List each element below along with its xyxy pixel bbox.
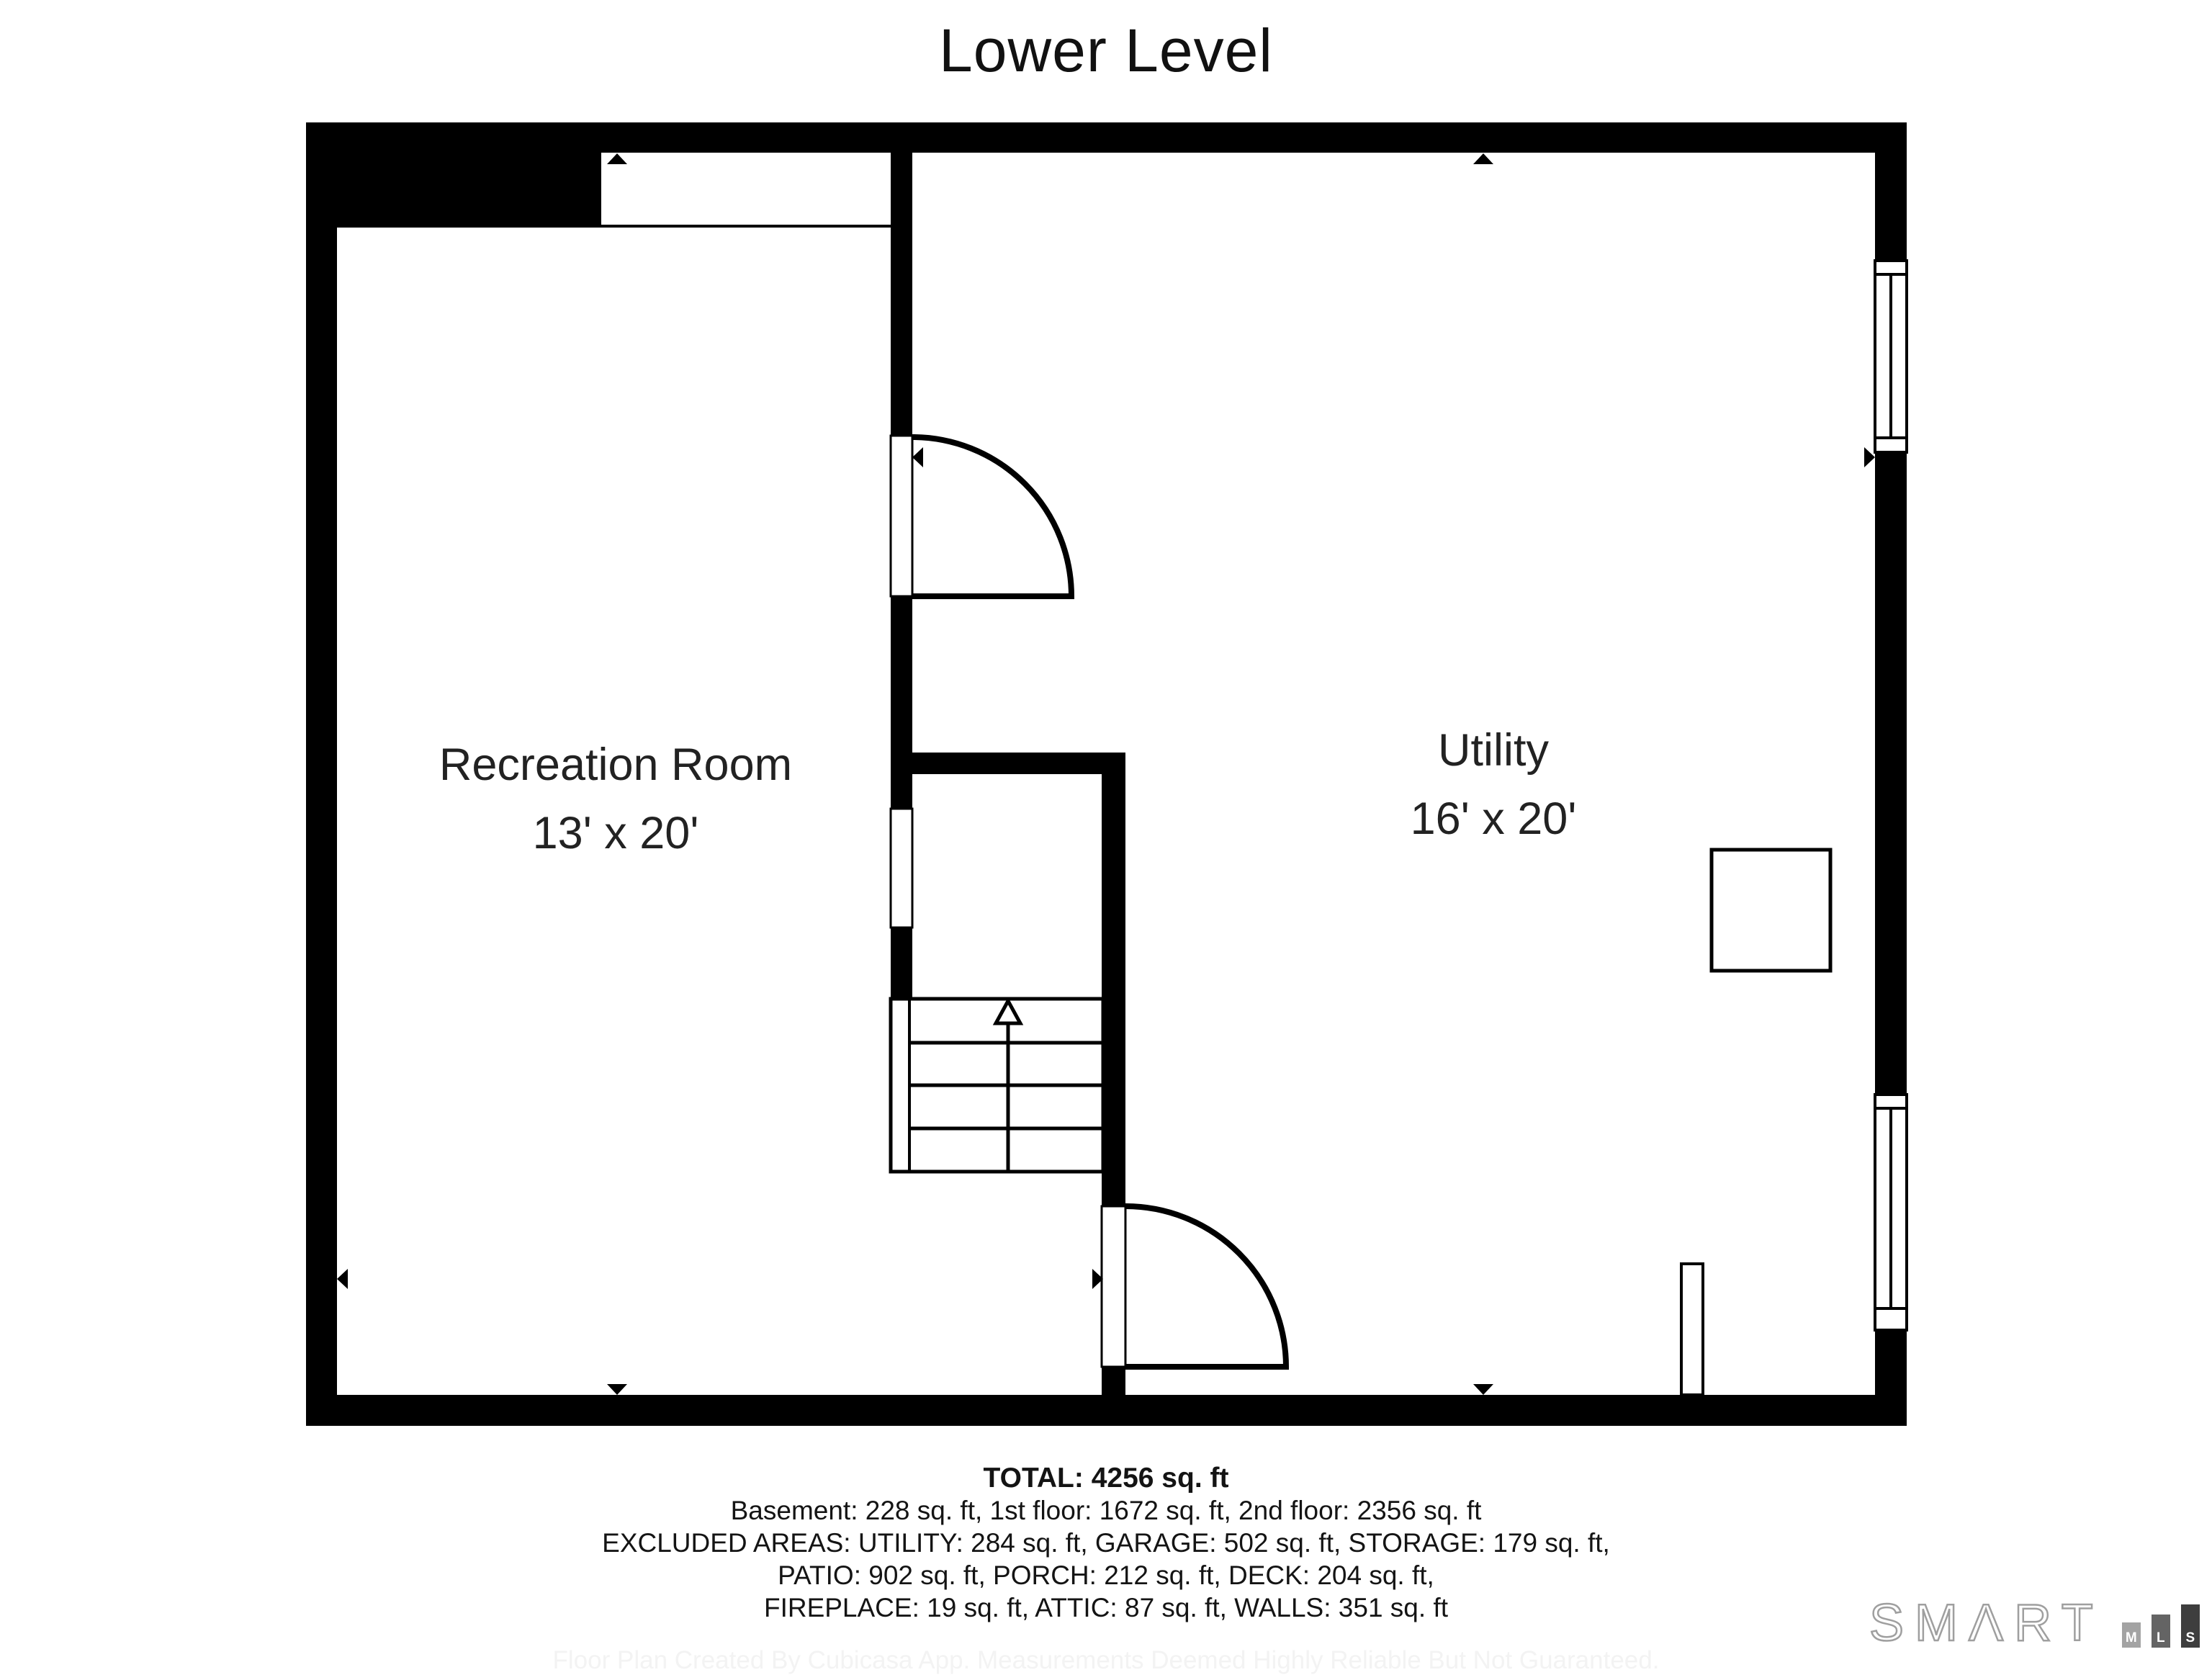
wall-stair-right bbox=[1102, 753, 1125, 1206]
solid-area-top-left bbox=[337, 153, 601, 228]
door-opening-utility bbox=[891, 436, 912, 596]
wall-top bbox=[306, 122, 1907, 153]
marker-left-utility bbox=[912, 447, 923, 467]
marker-right-utility bbox=[1864, 447, 1875, 467]
smartmls-wordmark: SMΛRT bbox=[1869, 1599, 2104, 1648]
window-lower bbox=[1875, 1095, 1907, 1330]
summary-total: TOTAL: 4256 sq. ft bbox=[0, 1462, 2212, 1494]
wall-center-upper bbox=[891, 153, 912, 436]
smartmls-logo: SMΛRT M L S bbox=[1869, 1594, 2200, 1648]
wall-center-lower bbox=[891, 928, 912, 999]
wall-stair-right-stub bbox=[1102, 1367, 1125, 1395]
marker-up-left bbox=[607, 153, 627, 164]
notch-bottom-line bbox=[337, 225, 891, 228]
wall-bottom bbox=[306, 1395, 1907, 1426]
equipment-box bbox=[1712, 850, 1830, 971]
room-label-recreation: Recreation Room 13' x 20' bbox=[256, 731, 976, 868]
door-swing-lower bbox=[1125, 1206, 1286, 1367]
room-name-utility: Utility bbox=[1205, 717, 1781, 785]
summary-excluded-1: EXCLUDED AREAS: UTILITY: 284 sq. ft, GAR… bbox=[0, 1527, 2212, 1559]
logo-block-m: M bbox=[2122, 1622, 2141, 1648]
summary-floors: Basement: 228 sq. ft, 1st floor: 1672 sq… bbox=[0, 1494, 2212, 1527]
wall-stub-fixture bbox=[1681, 1264, 1703, 1395]
marker-down-left bbox=[607, 1384, 627, 1395]
room-dimensions-utility: 16' x 20' bbox=[1205, 785, 1781, 853]
door-opening-lower bbox=[1102, 1206, 1125, 1367]
door-swing-utility bbox=[912, 437, 1071, 596]
marker-up-right bbox=[1473, 153, 1493, 164]
room-label-utility: Utility 16' x 20' bbox=[1205, 717, 1781, 853]
marker-left-recroom bbox=[337, 1269, 348, 1289]
summary-excluded-2: PATIO: 902 sq. ft, PORCH: 212 sq. ft, DE… bbox=[0, 1559, 2212, 1591]
marker-down-right bbox=[1473, 1384, 1493, 1395]
room-dimensions-recreation: 13' x 20' bbox=[256, 799, 976, 868]
smartmls-blocks: M L S bbox=[2111, 1604, 2200, 1648]
room-name-recreation: Recreation Room bbox=[256, 731, 976, 799]
logo-block-l: L bbox=[2152, 1615, 2170, 1648]
window-upper bbox=[1875, 261, 1907, 452]
logo-block-s: S bbox=[2181, 1604, 2200, 1648]
page-title: Lower Level bbox=[0, 16, 2212, 86]
